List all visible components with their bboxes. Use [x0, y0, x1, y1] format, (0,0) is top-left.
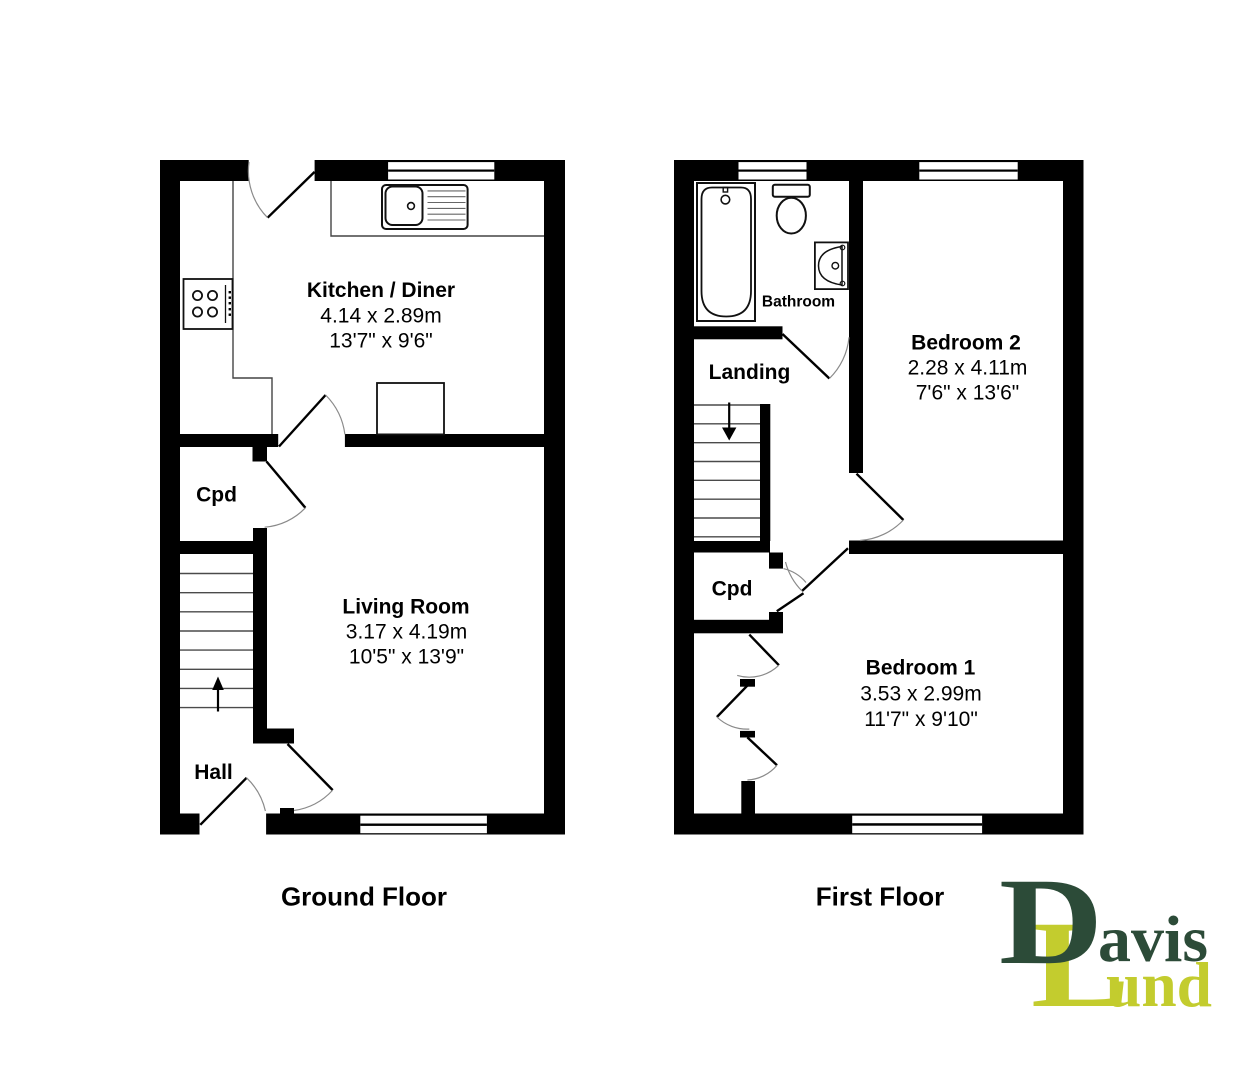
svg-text:Landing: Landing: [709, 361, 791, 384]
svg-text:Bedroom 1: Bedroom 1: [866, 657, 976, 680]
svg-text:4.14 x 2.89m: 4.14 x 2.89m: [320, 305, 441, 328]
svg-text:10'5" x 13'9": 10'5" x 13'9": [349, 646, 464, 669]
svg-text:11'7" x 9'10": 11'7" x 9'10": [864, 708, 978, 731]
svg-text:Kitchen / Diner: Kitchen / Diner: [307, 279, 455, 302]
svg-text:7'6" x 13'6": 7'6" x 13'6": [916, 382, 1020, 405]
svg-text:Living Room: Living Room: [342, 596, 469, 619]
svg-text:Bathroom: Bathroom: [762, 293, 835, 310]
svg-text:Ground Floor: Ground Floor: [281, 882, 447, 912]
svg-text:13'7" x 9'6": 13'7" x 9'6": [329, 330, 433, 353]
svg-text:Bedroom 2: Bedroom 2: [911, 332, 1021, 355]
svg-text:und: und: [1106, 949, 1212, 1020]
svg-text:Hall: Hall: [194, 761, 233, 784]
svg-text:D: D: [999, 853, 1103, 990]
svg-text:2.28 x 4.11m: 2.28 x 4.11m: [908, 357, 1028, 380]
svg-text:Cpd: Cpd: [196, 484, 237, 507]
svg-text:3.17 x 4.19m: 3.17 x 4.19m: [346, 621, 467, 644]
svg-text:First Floor: First Floor: [816, 882, 945, 912]
svg-text:3.53 x 2.99m: 3.53 x 2.99m: [860, 683, 981, 706]
svg-text:Cpd: Cpd: [712, 578, 753, 601]
